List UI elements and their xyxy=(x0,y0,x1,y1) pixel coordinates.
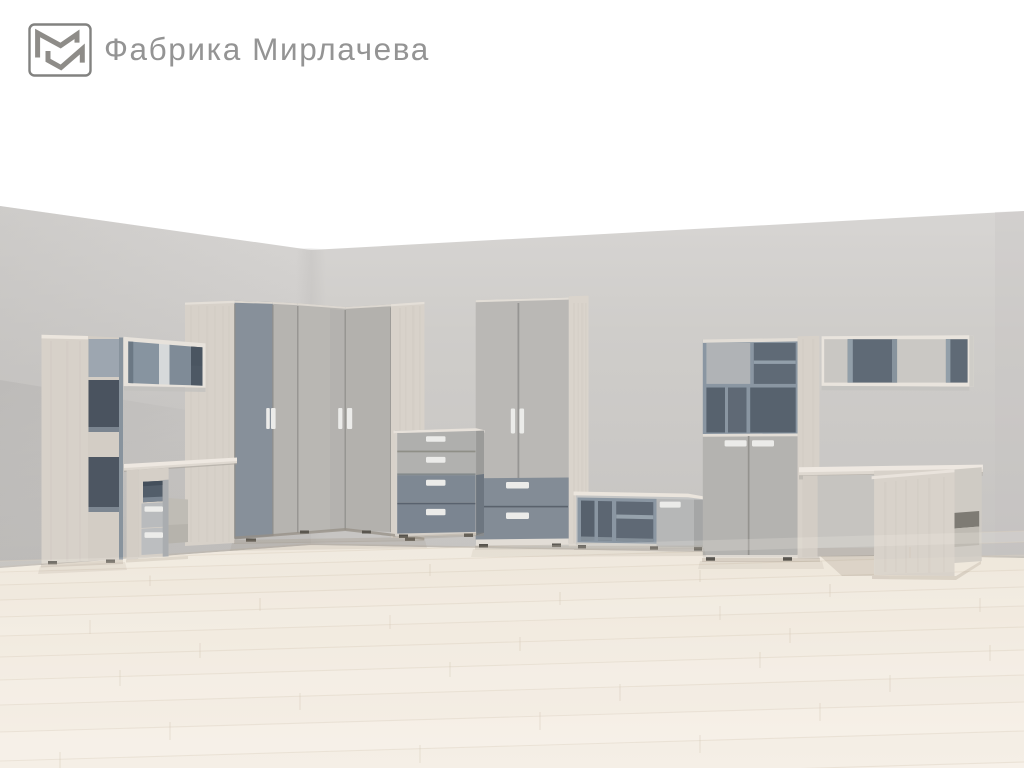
svg-text:Фабрика Мирлачева: Фабрика Мирлачева xyxy=(104,31,430,67)
